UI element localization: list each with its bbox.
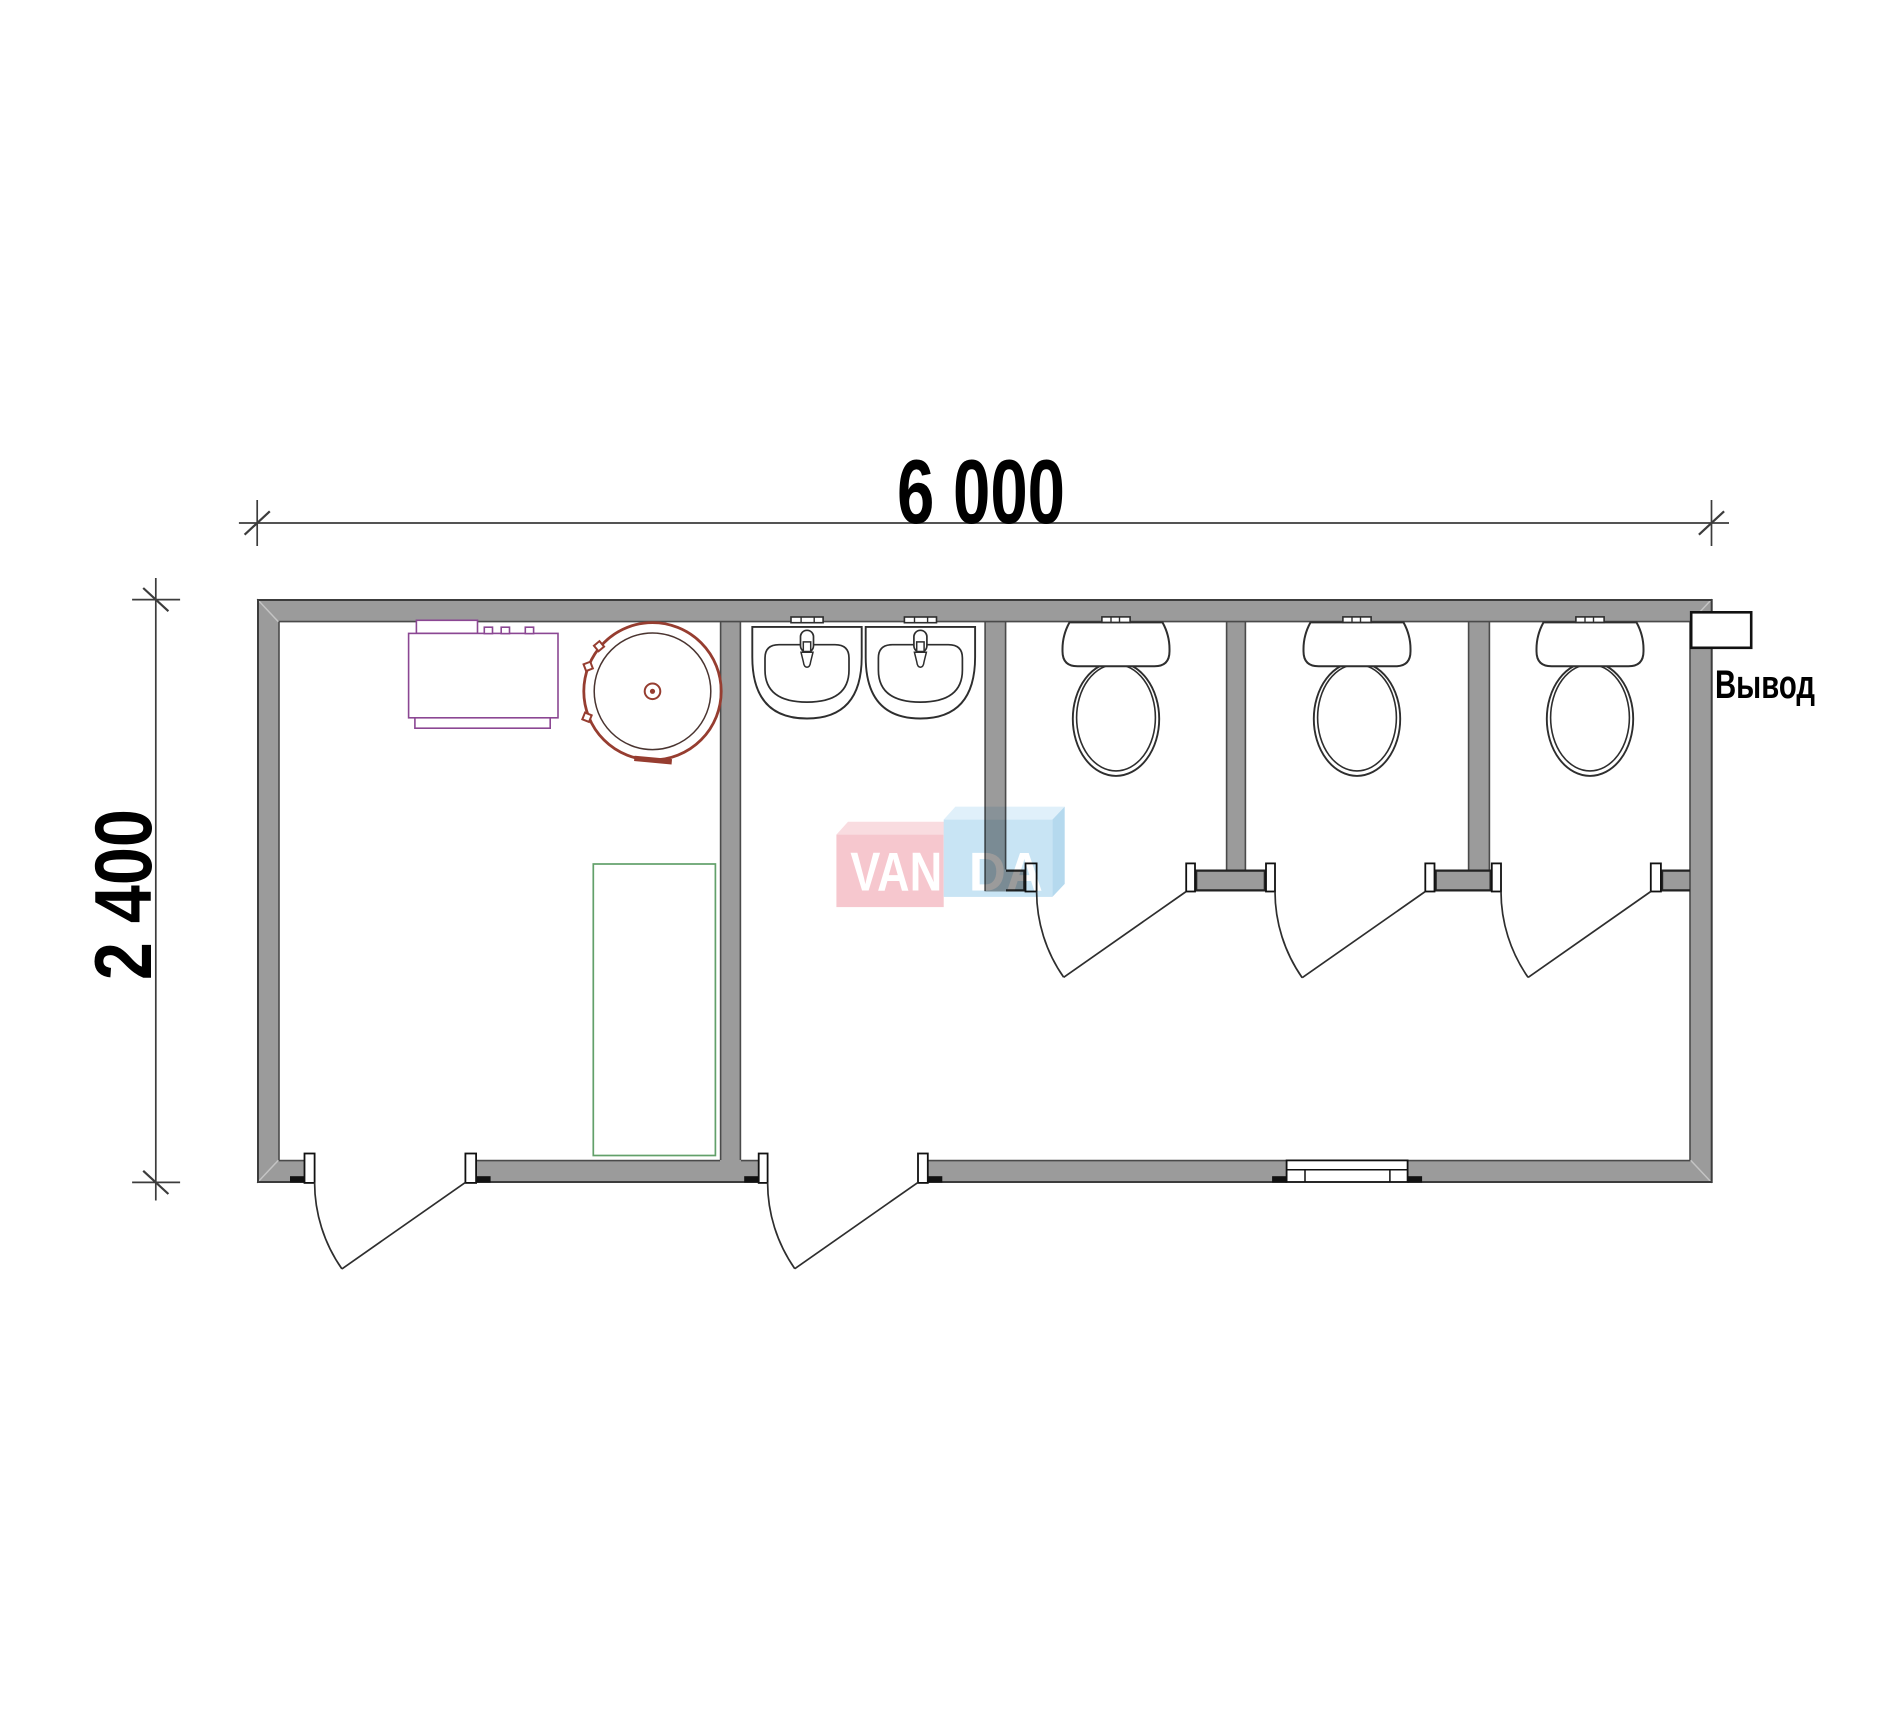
svg-text:2 400: 2 400 bbox=[79, 809, 169, 980]
svg-text:6 000: 6 000 bbox=[897, 442, 1065, 543]
svg-text:Вывод: Вывод bbox=[1715, 663, 1815, 707]
